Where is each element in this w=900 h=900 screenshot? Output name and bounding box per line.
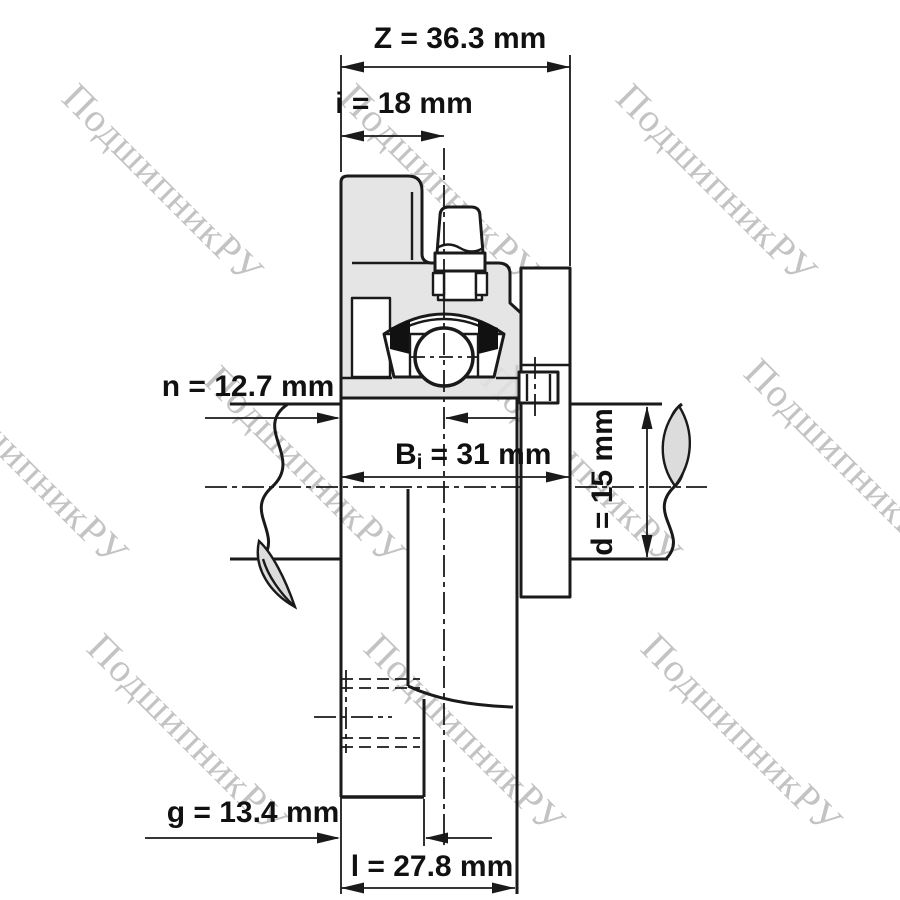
housing-back <box>521 268 570 597</box>
arrowhead-left <box>341 62 364 73</box>
watermark-text: ПодшипникРУ <box>736 350 900 569</box>
bi-base: B <box>395 438 417 471</box>
shaft-break-lens-left <box>258 541 295 607</box>
arrowhead-right <box>317 413 340 424</box>
arrowhead-left <box>341 883 364 894</box>
grease-fitting-thread-right <box>476 273 487 295</box>
grease-fitting-thread-left <box>433 273 444 295</box>
dimension-label-i: i = 18 mm <box>335 87 473 120</box>
arrowhead-right <box>421 131 444 142</box>
arrowhead-left <box>341 131 364 142</box>
housing-back-spigot <box>521 268 570 597</box>
bi-subscript: i <box>417 451 423 474</box>
flanged-bearing-unit-drawing: ПодшипникРУ ПодшипникРУ ПодшипникРУ Подш… <box>0 0 900 900</box>
arrowhead-right <box>547 62 570 73</box>
dimension-label-g: g = 13.4 mm <box>167 796 340 829</box>
arrowhead-right <box>492 883 515 894</box>
grease-fitting <box>433 207 487 300</box>
watermark-text: ПодшипникРУ <box>633 625 852 844</box>
dimension-label-bi: Bi= 31 mm <box>395 438 551 474</box>
grease-fitting-body <box>435 253 485 271</box>
watermark-text: ПодшипникРУ <box>0 357 137 576</box>
shaft-break-lens-right <box>663 406 690 486</box>
dimension-label-d: d = 15 mm <box>586 408 619 556</box>
bearing-drawing-page: ПодшипникРУ ПодшипникРУ ПодшипникРУ Подш… <box>0 0 900 900</box>
bi-value: = 31 mm <box>431 438 552 471</box>
dimension-g: g = 13.4 mm <box>145 796 492 846</box>
set-screw-collar <box>519 372 558 403</box>
arrowhead-right <box>317 833 340 844</box>
arrowhead-up <box>642 406 653 429</box>
watermark-text: ПодшипникРУ <box>608 75 827 294</box>
dimension-l: l = 27.8 mm <box>341 797 515 894</box>
arrowhead-left <box>425 833 448 844</box>
dimension-label-z: Z = 36.3 mm <box>374 22 547 55</box>
grease-fitting-shank <box>444 271 476 300</box>
watermark-text: ПодшипникРУ <box>54 75 273 294</box>
watermark-text: ПодшипникРУ <box>356 625 575 844</box>
arrowhead-left <box>445 413 468 424</box>
dimension-label-l: l = 27.8 mm <box>351 850 514 883</box>
dimension-label-n: n = 12.7 mm <box>162 370 335 403</box>
